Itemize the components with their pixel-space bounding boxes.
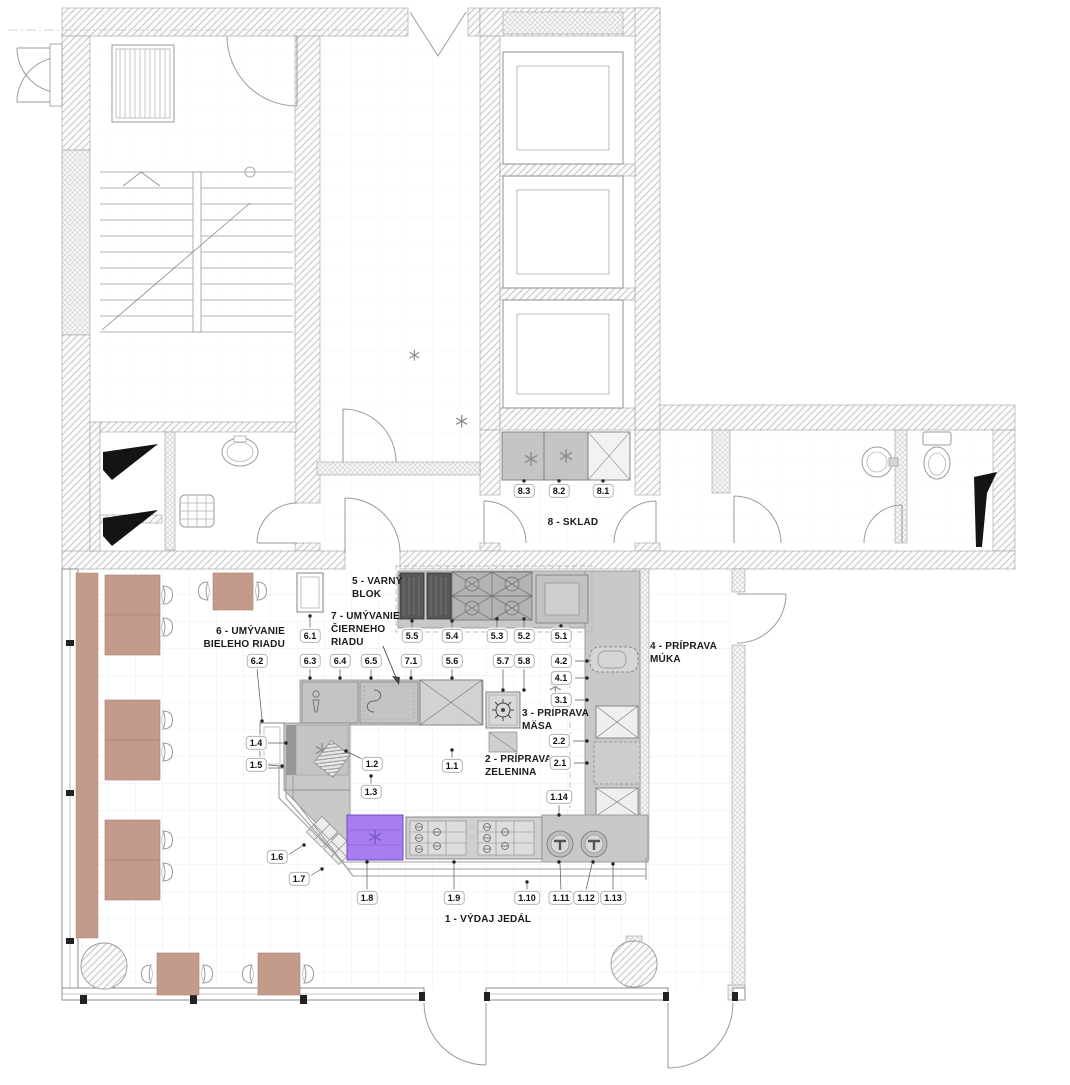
room-tag-5.7: 5.7 [493, 654, 514, 668]
room-tag-4.1: 4.1 [551, 671, 572, 685]
room-tag-1.3: 1.3 [361, 785, 382, 799]
room-tag-1.5: 1.5 [246, 758, 267, 772]
room-tag-1.7: 1.7 [289, 872, 310, 886]
room-tag-1.4: 1.4 [246, 736, 267, 750]
room-tag-1.12: 1.12 [573, 891, 599, 905]
room-tag-4.2: 4.2 [551, 654, 572, 668]
room-tag-6.1: 6.1 [300, 629, 321, 643]
room-tag-1.8: 1.8 [357, 891, 378, 905]
area-label-sklad: 8 - SKLAD [548, 516, 599, 529]
room-tag-8.1: 8.1 [593, 484, 614, 498]
room-tag-1.2: 1.2 [362, 757, 383, 771]
room-tag-1.10: 1.10 [514, 891, 540, 905]
room-tag-1.6: 1.6 [267, 850, 288, 864]
room-tag-5.1: 5.1 [551, 629, 572, 643]
room-tag-5.3: 5.3 [487, 629, 508, 643]
room-tag-6.3: 6.3 [300, 654, 321, 668]
room-tag-5.8: 5.8 [514, 654, 535, 668]
area-label-priprava-zelenina: 2 - PRÍPRAVA ZELENINA [485, 753, 552, 779]
room-tag-1.1: 1.1 [442, 759, 463, 773]
room-tag-5.6: 5.6 [442, 654, 463, 668]
room-tag-1.14: 1.14 [546, 790, 572, 804]
area-label-vydaj-jedal: 1 - VÝDAJ JEDÁL [445, 913, 531, 926]
area-label-priprava-muka: 4 - PRÍPRAVA MÚKA [650, 640, 717, 666]
room-tag-1.9: 1.9 [444, 891, 465, 905]
room-tag-3.1: 3.1 [551, 693, 572, 707]
room-tag-2.1: 2.1 [550, 756, 571, 770]
labels-layer: 5 - VARNÝ BLOK7 - UMÝVANIE ČIERNEHO RIAD… [0, 0, 1070, 1085]
room-tag-5.2: 5.2 [514, 629, 535, 643]
room-tag-7.1: 7.1 [401, 654, 422, 668]
room-tag-1.13: 1.13 [600, 891, 626, 905]
room-tag-5.4: 5.4 [442, 629, 463, 643]
area-label-umyvanie-bieleho-riadu: 6 - UMÝVANIE BIELEHO RIADU [204, 625, 286, 651]
area-label-umyvanie-cierneho-riadu: 7 - UMÝVANIE ČIERNEHO RIADU [331, 610, 400, 650]
room-tag-1.11: 1.11 [548, 891, 573, 905]
floor-plan: 5 - VARNÝ BLOK7 - UMÝVANIE ČIERNEHO RIAD… [0, 0, 1070, 1085]
room-tag-5.5: 5.5 [402, 629, 423, 643]
room-tag-6.4: 6.4 [330, 654, 351, 668]
area-label-priprava-masa: 3 - PRÍPRAVA MÄSA [522, 707, 589, 733]
room-tag-6.2: 6.2 [247, 654, 268, 668]
area-label-varny-blok: 5 - VARNÝ BLOK [352, 575, 403, 601]
room-tag-8.3: 8.3 [514, 484, 535, 498]
room-tag-8.2: 8.2 [549, 484, 570, 498]
room-tag-2.2: 2.2 [549, 734, 570, 748]
room-tag-6.5: 6.5 [361, 654, 382, 668]
